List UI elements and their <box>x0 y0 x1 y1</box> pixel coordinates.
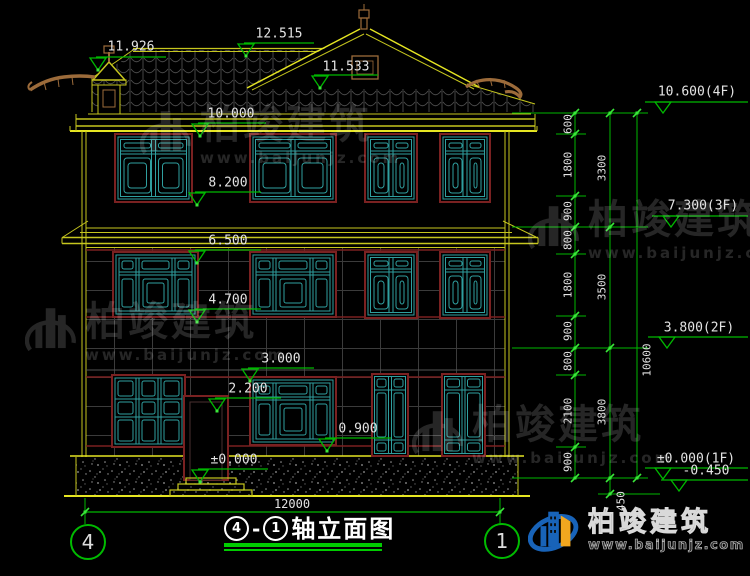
drawing-linework <box>0 0 750 576</box>
watermark-url: www.baijunjz.com <box>85 346 286 364</box>
drawing-title: 4 - 1 轴立面图 <box>224 516 395 541</box>
title-text: 轴立面图 <box>291 517 395 541</box>
elevation-label-10600-4f: 10.600(4F) <box>658 86 736 99</box>
elevation-label-4700: 4.700 <box>208 294 247 307</box>
dim-width-12000: 12000 <box>274 498 310 510</box>
dim-800-b: 800 <box>563 351 574 371</box>
elevation-label-11533: 11.533 <box>323 61 370 74</box>
title-axis-left: 4 <box>224 516 249 541</box>
watermark-logo-icon <box>412 403 464 461</box>
roof <box>92 4 535 112</box>
left-roof-pavilion <box>28 46 126 114</box>
dim-900-b: 900 <box>563 321 574 341</box>
watermark: 柏竣建筑 www.baijunjz.com <box>140 103 401 167</box>
elevation-label-minus-0450: -0.450 <box>683 465 730 478</box>
axis-bubble-1: 1 <box>484 523 520 559</box>
dim-2100: 2100 <box>563 398 574 425</box>
elevation-label-0900: 0.900 <box>338 423 377 436</box>
watermark-url: www.baijunjz.com <box>200 149 401 167</box>
dim-600: 600 <box>563 114 574 134</box>
title-dash: - <box>252 519 260 539</box>
belt-course <box>62 221 538 248</box>
axis-bubble-1-label: 1 <box>496 529 509 553</box>
axis-bubble-4: 4 <box>70 524 106 560</box>
brand-footer: 柏竣建筑 www.baijunjz.com <box>528 504 745 556</box>
elevation-label-3800-2f: 3.800(2F) <box>664 322 734 335</box>
dim-1800-a: 1800 <box>563 152 574 179</box>
axis-bubble-4-label: 4 <box>82 530 95 554</box>
elevation-label-8200: 8.200 <box>208 177 247 190</box>
watermark-logo-icon <box>25 300 77 358</box>
dim-floor-3800: 3800 <box>597 399 608 426</box>
elevation-label-11926: 11.926 <box>108 41 155 54</box>
watermark-brand: 柏竣建筑 <box>85 300 286 344</box>
watermark-logo-icon <box>140 103 192 161</box>
elevation-label-6500: 6.500 <box>208 235 247 248</box>
elevation-label-0000: ±0.000 <box>211 454 258 467</box>
watermark: 柏竣建筑 www.baijunjz.com <box>25 300 286 364</box>
dim-800-a: 800 <box>563 230 574 250</box>
dim-900-a: 900 <box>563 201 574 221</box>
elevation-label-7300-3f: 7.300(3F) <box>668 200 738 213</box>
brand-name: 柏竣建筑 <box>588 509 745 536</box>
elevation-label-3000: 3.000 <box>261 353 300 366</box>
dim-1800-b: 1800 <box>563 272 574 299</box>
elevation-label-2200: 2.200 <box>228 383 267 396</box>
dim-total-10600: 10600 <box>642 343 653 376</box>
brand-url: www.baijunjz.com <box>588 539 745 552</box>
watermark-url: www.baijunjz.com <box>588 244 750 262</box>
watermark: 柏竣建筑 www.baijunjz.com <box>412 403 673 467</box>
dim-900-c: 900 <box>563 452 574 472</box>
title-axis-right: 1 <box>263 516 288 541</box>
title-underline-thin <box>224 549 382 551</box>
title-underline-thick <box>224 543 382 547</box>
dim-floor-3300: 3300 <box>597 155 608 182</box>
dim-floor-3500: 3500 <box>597 274 608 301</box>
elevation-label-12515: 12.515 <box>256 28 303 41</box>
elevation-label-10000: 10.000 <box>208 108 255 121</box>
cad-elevation-drawing: 柏竣建筑 www.baijunjz.com 柏竣建筑 www.baijunjz.… <box>0 0 750 576</box>
brand-logo-icon <box>528 504 582 556</box>
